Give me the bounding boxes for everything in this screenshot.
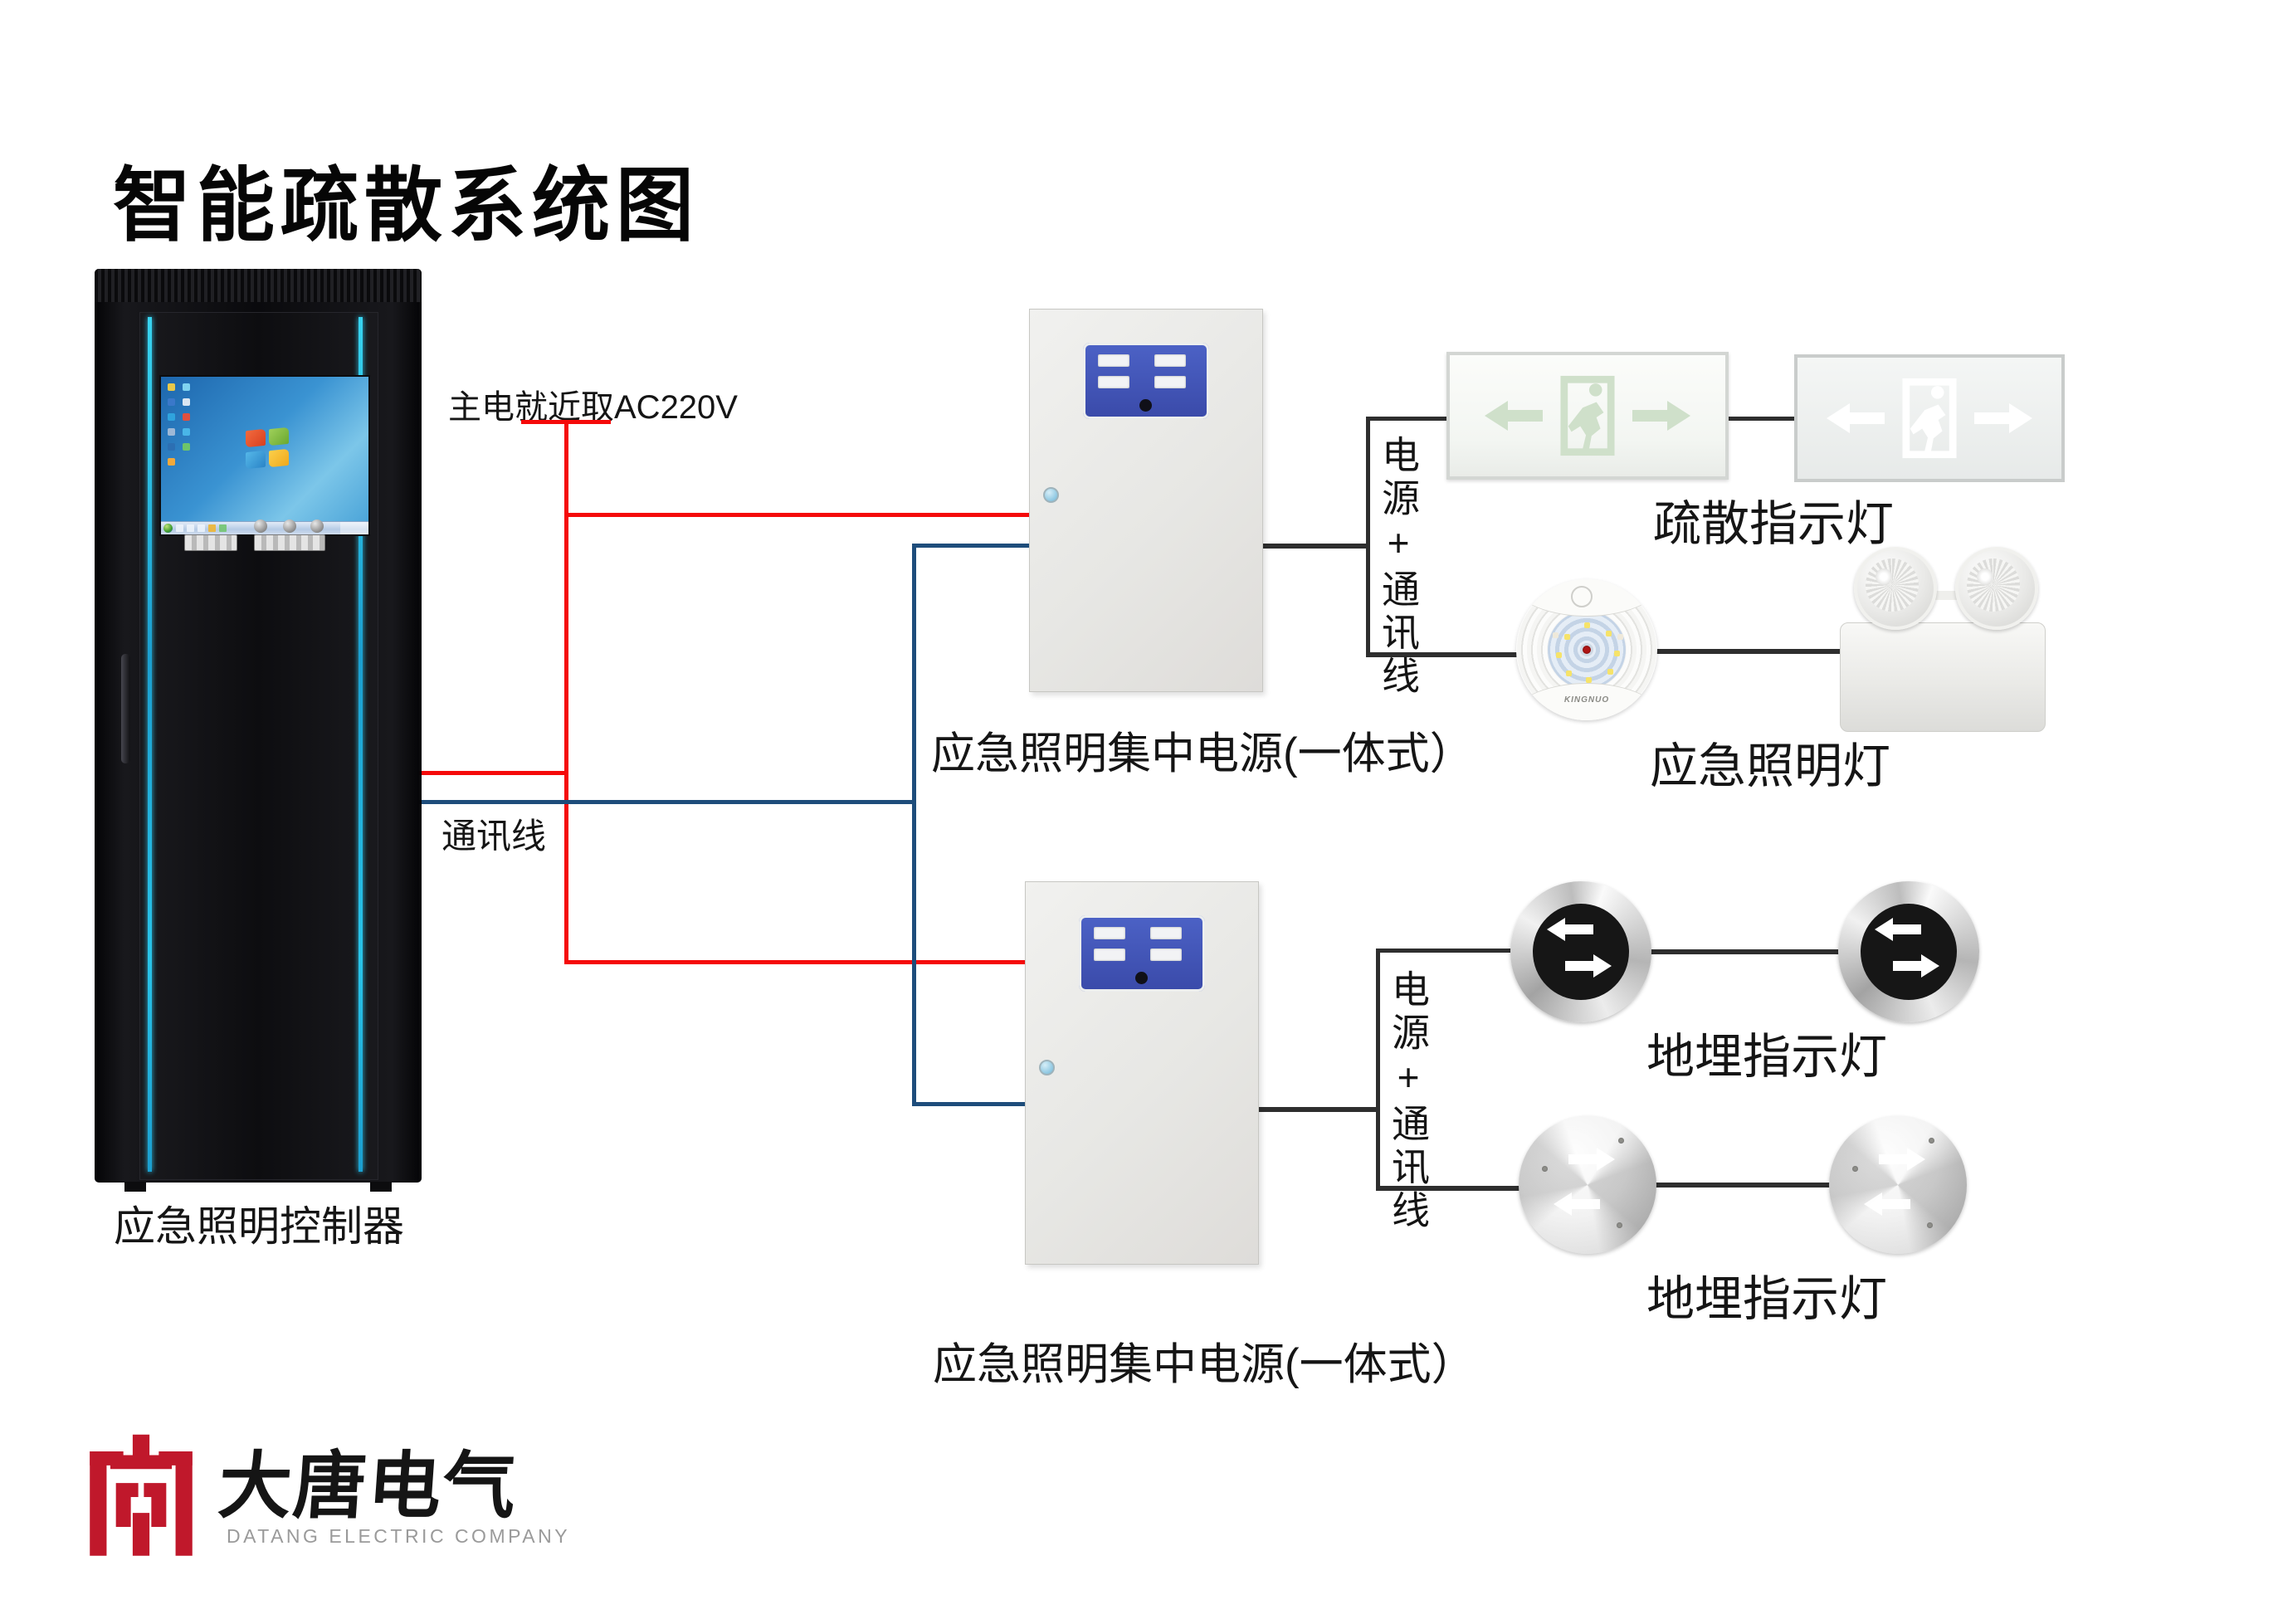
arrow-right-icon bbox=[1568, 1148, 1615, 1171]
lamp-led-dots bbox=[1584, 622, 1590, 628]
twohead-lamp-head-right bbox=[1955, 547, 2038, 630]
taskbar-icon bbox=[176, 524, 183, 532]
power-branch-wire-box2 bbox=[564, 960, 1027, 964]
twohead-lamp-head-left bbox=[1854, 547, 1937, 630]
arrow-right-icon bbox=[1879, 1148, 1925, 1171]
controller-display-screen bbox=[159, 375, 370, 536]
panel-button bbox=[1135, 972, 1148, 984]
company-name-en: DATANG ELECTRIC COMPANY bbox=[227, 1525, 570, 1548]
comm-branch-wire-box2 bbox=[912, 1102, 1028, 1106]
desktop-icon bbox=[183, 443, 190, 451]
door-lock bbox=[1043, 487, 1059, 503]
buried-light-label-1: 地埋指示灯 bbox=[1646, 1017, 1887, 1087]
comm-line-label: 通讯线 bbox=[441, 808, 546, 859]
buried-indicator-light-3 bbox=[1519, 1116, 1656, 1254]
buried-row1-wire bbox=[1650, 949, 1841, 954]
desktop-icon bbox=[183, 428, 190, 436]
lamp-brand-text: KINGNUO bbox=[1516, 695, 1657, 705]
taskbar-icon bbox=[219, 524, 227, 532]
windows-logo-pane-green bbox=[269, 427, 289, 446]
emergency-light-label: 应急照明灯 bbox=[1650, 727, 1890, 797]
door-lock bbox=[1039, 1060, 1055, 1075]
desktop-icon bbox=[183, 413, 190, 421]
led-display bbox=[1150, 927, 1182, 939]
windows-logo-pane-red bbox=[246, 429, 266, 448]
exit-sign-1 bbox=[1446, 352, 1729, 480]
desktop-icon bbox=[168, 428, 175, 436]
taskbar-clock bbox=[340, 522, 368, 534]
led-display bbox=[1098, 354, 1129, 367]
led-display bbox=[1154, 354, 1186, 367]
power-box-display-panel bbox=[1083, 343, 1209, 419]
centralized-power-box-2 bbox=[1025, 881, 1259, 1265]
desktop-icon bbox=[168, 458, 175, 466]
lamp-indicator bbox=[1583, 646, 1591, 654]
led-display bbox=[1094, 949, 1125, 961]
buried-indicator-light-1 bbox=[1510, 881, 1651, 1022]
control-keypad bbox=[254, 534, 325, 551]
windows-logo-pane-yellow bbox=[269, 449, 289, 468]
lamp-test-button bbox=[1571, 586, 1593, 607]
exit-arrow-right-icon bbox=[1632, 401, 1690, 431]
bracket2-vertical bbox=[1376, 949, 1380, 1191]
box1-output-wire bbox=[1257, 544, 1370, 549]
running-man-icon bbox=[1559, 374, 1616, 457]
comm-trunk-wire bbox=[912, 544, 916, 1106]
bracket2-top-branch bbox=[1376, 949, 1513, 953]
taskbar-icon bbox=[198, 524, 205, 532]
led-display bbox=[1094, 927, 1125, 939]
arrow-right-icon bbox=[1565, 954, 1612, 978]
arrow-right-icon bbox=[1893, 954, 1939, 978]
datang-logo-mark bbox=[80, 1424, 202, 1570]
power-box-2-label: 应急照明集中电源(一体式） bbox=[933, 1329, 1476, 1392]
centralized-power-box-1 bbox=[1029, 309, 1263, 692]
control-keypad bbox=[184, 534, 237, 551]
bracket1-top-branch bbox=[1366, 417, 1450, 421]
led-display bbox=[1154, 376, 1186, 388]
led-display bbox=[1150, 949, 1182, 961]
bundle-label-group1: 电源+通讯线 bbox=[1371, 435, 1426, 699]
panel-button bbox=[1139, 399, 1152, 412]
emergency-lighting-controller-cabinet bbox=[95, 269, 422, 1183]
taskbar-icon bbox=[208, 524, 216, 532]
exit-arrow-right-icon bbox=[1974, 403, 2032, 433]
lamp-twohead-wire bbox=[1654, 649, 1841, 654]
buried-light-label-2: 地埋指示灯 bbox=[1646, 1260, 1887, 1329]
arrow-left-icon bbox=[1554, 1192, 1600, 1216]
exit-arrow-left-icon bbox=[1827, 403, 1885, 433]
lamp-bottom-cap: KINGNUO bbox=[1516, 683, 1657, 720]
controller-label: 应急照明控制器 bbox=[114, 1193, 404, 1253]
power-box-display-panel bbox=[1079, 915, 1205, 992]
rack-door-handle bbox=[121, 654, 130, 763]
desktop-icon bbox=[168, 413, 175, 421]
windows-logo-pane-blue bbox=[246, 451, 266, 470]
box2-output-wire bbox=[1255, 1107, 1379, 1112]
exit-arrow-left-icon bbox=[1485, 401, 1543, 431]
rack-foot bbox=[370, 1182, 392, 1192]
start-orb-icon bbox=[163, 524, 173, 533]
desktop-icon bbox=[183, 383, 190, 391]
round-emergency-lamp: KINGNUO bbox=[1516, 579, 1657, 720]
lamp-led-area bbox=[1548, 611, 1626, 689]
power-box-1-label: 应急照明集中电源(一体式） bbox=[931, 719, 1474, 782]
rack-led-strip-left bbox=[148, 317, 152, 1172]
exit-sign-label: 疏散指示灯 bbox=[1653, 485, 1894, 554]
desktop-icon bbox=[168, 383, 175, 391]
evacuation-system-diagram: 智能疏散系统图 主电就近取AC220V 通讯线 bbox=[0, 0, 2278, 1624]
power-branch-wire-box1 bbox=[564, 513, 1031, 517]
desktop-icon bbox=[183, 398, 190, 406]
control-knob bbox=[310, 519, 324, 533]
arrow-left-icon bbox=[1875, 918, 1921, 941]
power-trunk-wire bbox=[564, 420, 568, 963]
bundle-label-group2: 电源+通讯线 bbox=[1381, 969, 1436, 1233]
lamp-top-cap bbox=[1516, 579, 1657, 617]
control-knob bbox=[283, 519, 296, 533]
buried-row2-wire bbox=[1655, 1183, 1832, 1188]
desktop-icon bbox=[168, 443, 175, 451]
rack-foot bbox=[124, 1182, 146, 1192]
led-display bbox=[1098, 376, 1129, 388]
controller-comm-wire bbox=[413, 800, 916, 804]
buried-indicator-light-2 bbox=[1838, 881, 1979, 1022]
company-name-cn: 大唐电气 bbox=[216, 1427, 522, 1533]
controller-power-wire bbox=[413, 771, 568, 775]
comm-branch-wire-box1 bbox=[912, 544, 1031, 548]
page-title: 智能疏散系统图 bbox=[113, 140, 700, 257]
running-man-icon bbox=[1901, 377, 1958, 460]
sign1-sign2-wire bbox=[1718, 417, 1794, 421]
buried-indicator-light-4 bbox=[1829, 1116, 1967, 1254]
twohead-lamp-body bbox=[1840, 622, 2046, 732]
rack-vent-grille bbox=[95, 269, 422, 302]
arrow-left-icon bbox=[1864, 1192, 1910, 1216]
exit-sign-2 bbox=[1794, 354, 2065, 482]
desktop-icon bbox=[168, 398, 175, 406]
control-knob bbox=[254, 519, 267, 533]
arrow-left-icon bbox=[1547, 918, 1593, 941]
taskbar-icon bbox=[187, 524, 194, 532]
bracket1-vertical bbox=[1366, 417, 1370, 657]
